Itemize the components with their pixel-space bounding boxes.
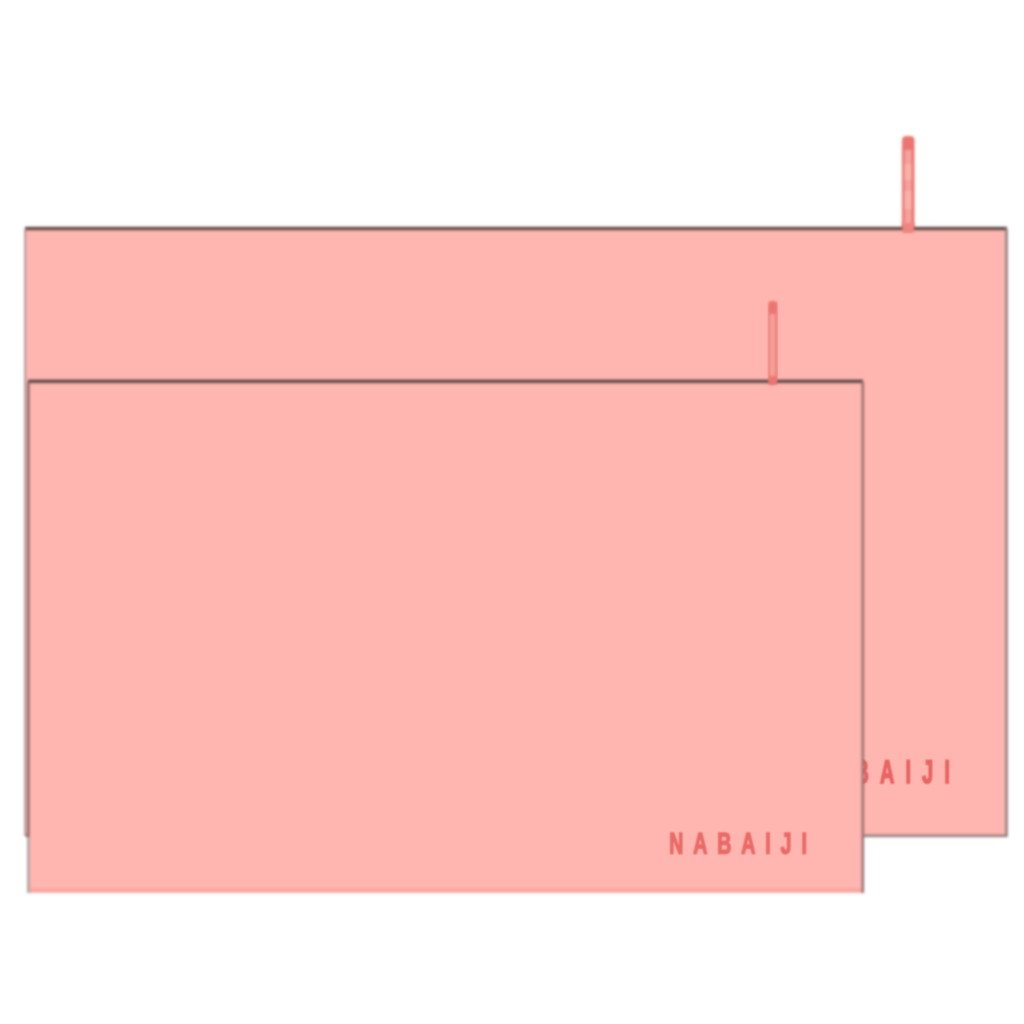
svg-text:NABAIJI: NABAIJI (669, 827, 817, 860)
